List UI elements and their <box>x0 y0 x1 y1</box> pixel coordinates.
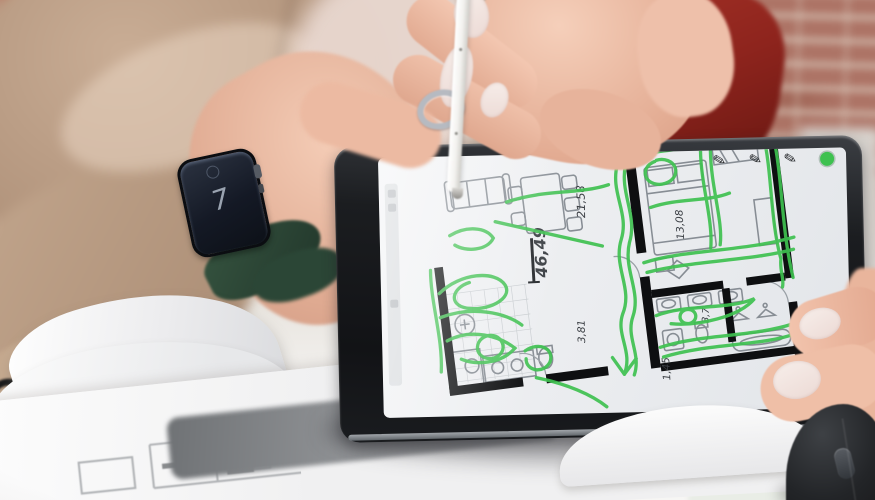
stylus-tip <box>452 188 464 200</box>
photo-scene: 7 <box>0 0 875 500</box>
stylus-hand-group <box>0 0 875 500</box>
mouse-scroll-wheel <box>833 446 857 480</box>
